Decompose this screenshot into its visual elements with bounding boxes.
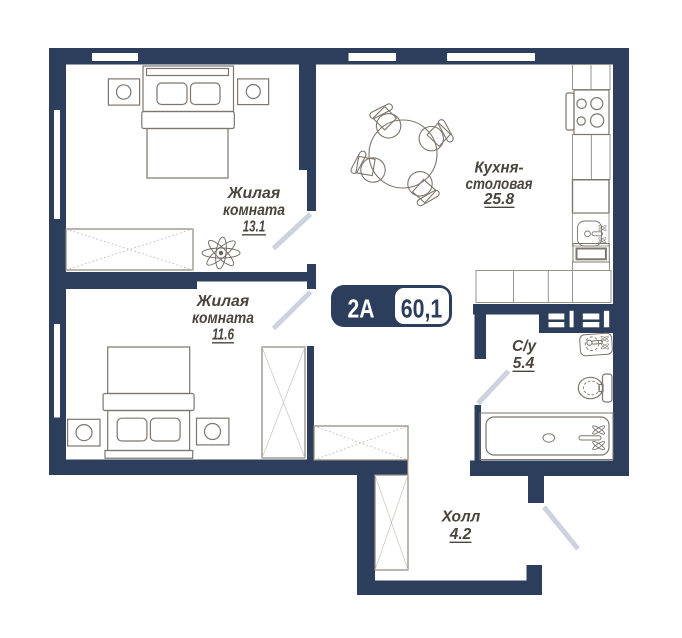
svg-text:13.1: 13.1 — [243, 219, 266, 236]
svg-text:Холл: Холл — [441, 509, 481, 526]
svg-text:Жилая: Жилая — [227, 185, 281, 202]
svg-text:комната: комната — [192, 310, 254, 327]
svg-text:11.6: 11.6 — [212, 327, 234, 344]
svg-text:5.4: 5.4 — [513, 355, 535, 372]
svg-text:4.2: 4.2 — [449, 526, 472, 543]
svg-text:60,1: 60,1 — [401, 294, 443, 324]
svg-text:2A: 2A — [348, 294, 375, 324]
svg-text:Кухня-: Кухня- — [475, 160, 524, 177]
svg-text:С/у: С/у — [512, 338, 538, 355]
svg-text:комната: комната — [223, 202, 285, 219]
svg-text:25.8: 25.8 — [483, 191, 515, 208]
svg-text:Жилая: Жилая — [196, 293, 250, 310]
